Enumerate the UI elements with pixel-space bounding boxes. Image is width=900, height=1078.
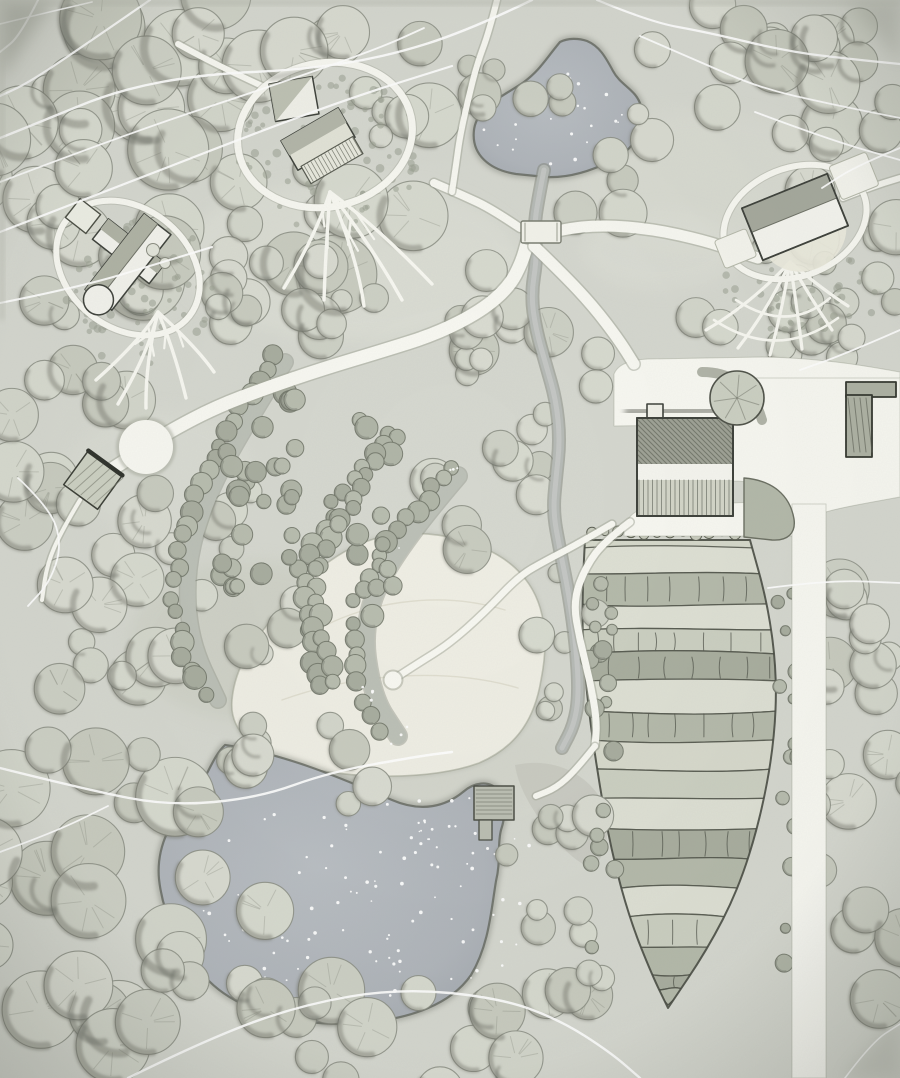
site-plan-drawing: Hand-drawn landscape site plan: wooded g… [0,0,900,1078]
vignette [0,0,900,1078]
edge-shade-top [0,0,900,5]
layer-photo-effects [0,0,900,1078]
site-plan-canvas [0,0,900,1078]
edge-shade-left [0,0,4,320]
